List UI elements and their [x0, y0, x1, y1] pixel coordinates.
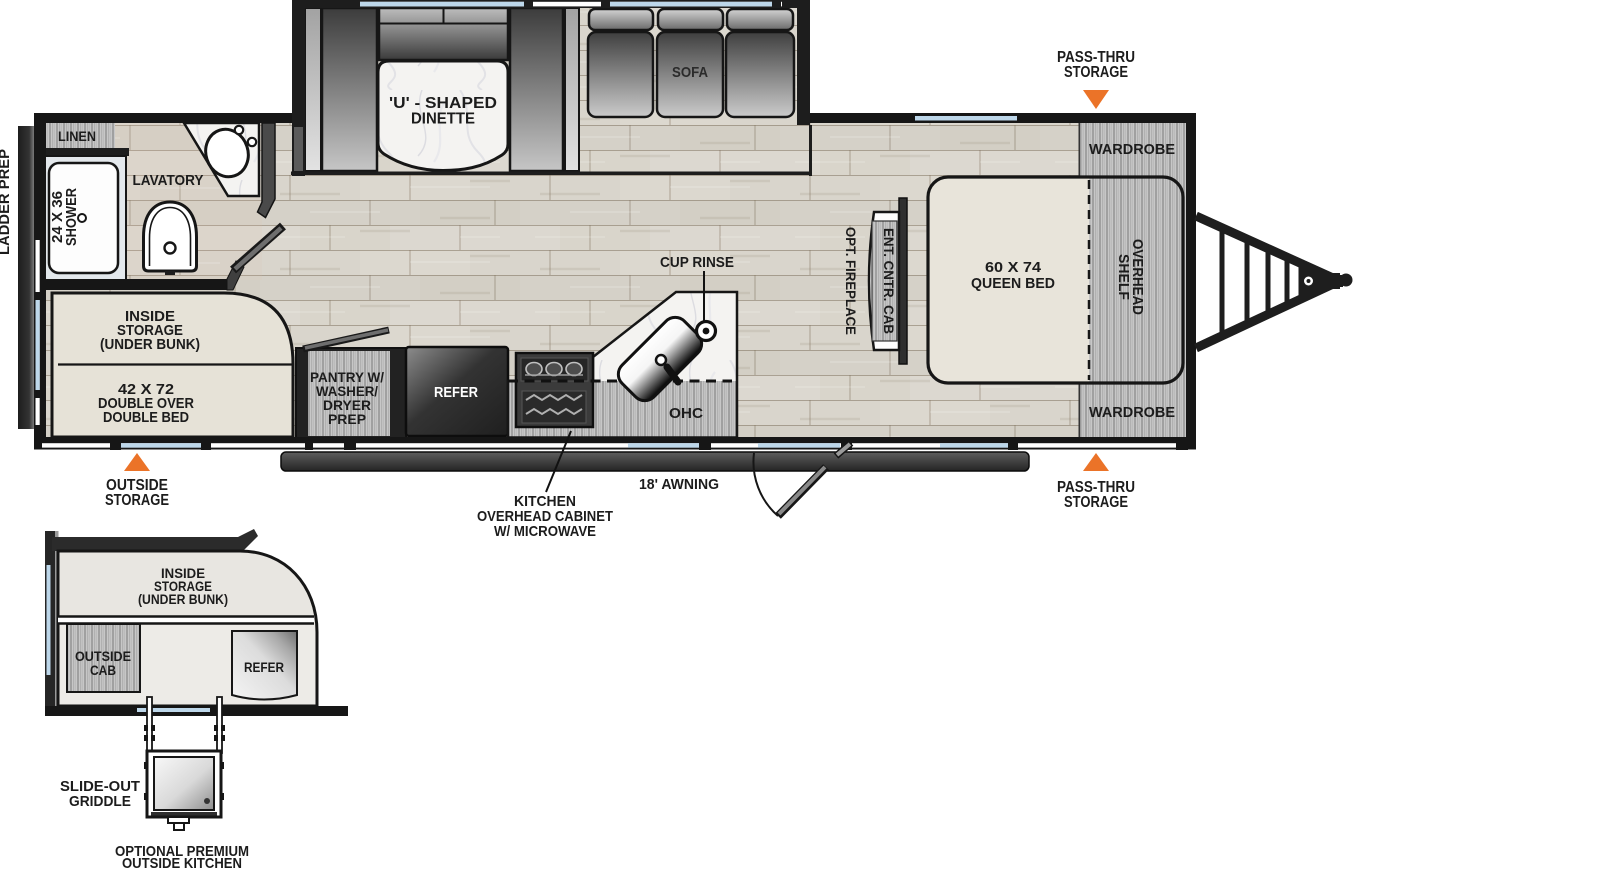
svg-text:STORAGE: STORAGE: [1064, 64, 1128, 81]
svg-text:OHC: OHC: [669, 405, 703, 422]
svg-text:WARDROBE: WARDROBE: [1089, 141, 1175, 158]
svg-text:WARDROBE: WARDROBE: [1089, 404, 1175, 421]
svg-text:OUTSIDE KITCHEN: OUTSIDE KITCHEN: [122, 855, 242, 869]
svg-text:18' AWNING: 18' AWNING: [639, 476, 719, 493]
svg-text:REFER: REFER: [434, 384, 478, 401]
svg-text:DINETTE: DINETTE: [411, 111, 475, 128]
svg-text:'U' - SHAPED: 'U' - SHAPED: [389, 95, 497, 112]
svg-text:60 X 74: 60 X 74: [985, 259, 1042, 276]
svg-text:OPT. FIREPLACE: OPT. FIREPLACE: [843, 227, 859, 335]
svg-text:SOFA: SOFA: [672, 64, 708, 81]
svg-text:DOUBLE BED: DOUBLE BED: [103, 409, 189, 426]
svg-text:GRIDDLE: GRIDDLE: [69, 793, 131, 810]
svg-text:LAVATORY: LAVATORY: [133, 172, 204, 189]
svg-text:CUP RINSE: CUP RINSE: [660, 254, 734, 271]
svg-text:CAB: CAB: [90, 662, 116, 678]
svg-text:LADDER PREP: LADDER PREP: [0, 149, 13, 255]
svg-text:PREP: PREP: [328, 411, 366, 427]
svg-text:W/ MICROWAVE: W/ MICROWAVE: [494, 523, 596, 540]
svg-text:24 X 36SHOWER: 24 X 36SHOWER: [50, 188, 80, 246]
svg-text:(UNDER BUNK): (UNDER BUNK): [100, 336, 200, 353]
svg-text:STORAGE: STORAGE: [105, 492, 169, 509]
svg-text:REFER: REFER: [244, 660, 284, 675]
svg-text:QUEEN BED: QUEEN BED: [971, 275, 1055, 292]
svg-text:STORAGE: STORAGE: [1064, 494, 1128, 511]
svg-text:(UNDER BUNK): (UNDER BUNK): [138, 591, 228, 607]
svg-text:ENT. CNTR. CAB: ENT. CNTR. CAB: [881, 228, 896, 334]
svg-text:LINEN: LINEN: [58, 128, 96, 144]
